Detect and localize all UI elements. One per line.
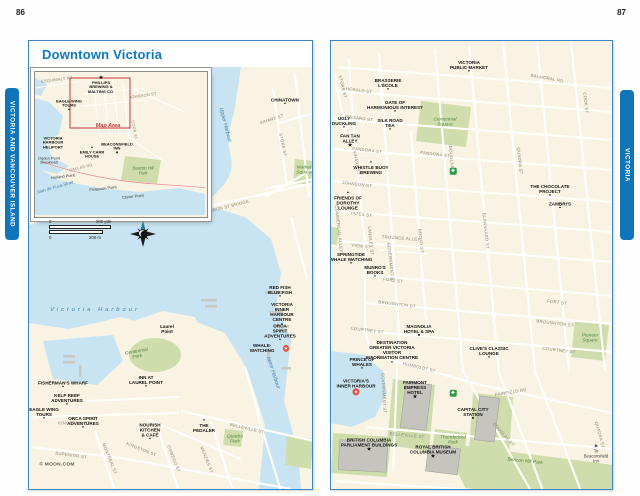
- book-spread: 86 87 VICTORIA AND VANCOUVER ISLAND VICT…: [0, 0, 640, 496]
- right-map-canvas: [331, 41, 612, 489]
- page-number-left: 86: [16, 8, 25, 17]
- museum-building: [426, 445, 461, 475]
- right-page: VICTORIA PUBLIC MARKET●BALMORAL RDHERALD…: [330, 40, 613, 490]
- compass-rose-icon: [130, 221, 156, 247]
- page-number-right: 87: [617, 8, 626, 17]
- centennial-park-green: [129, 338, 181, 372]
- left-page: Downtown Victoria: [28, 40, 313, 490]
- inset-map: ESQUIMALT RDPHILLIPS BREWING & MALTING C…: [34, 71, 208, 218]
- left-map: CHINATOWN●WHARF STSTORE STMarket SquareU…: [29, 67, 312, 489]
- scale-bar: 0200 yds 0200 m: [49, 219, 111, 240]
- parliament-building: [338, 440, 388, 472]
- chapter-tab-right: VICTORIA: [620, 90, 634, 240]
- map-title: Downtown Victoria: [29, 47, 162, 62]
- inset-canvas: [35, 72, 205, 215]
- map-title-bar: Downtown Victoria: [29, 41, 312, 68]
- chapter-tab-left: VICTORIA AND VANCOUVER ISLAND: [5, 88, 19, 240]
- quadra-park-green: [223, 429, 243, 447]
- empress-hotel-building: [400, 382, 431, 431]
- right-map: VICTORIA PUBLIC MARKET●BALMORAL RDHERALD…: [331, 41, 612, 489]
